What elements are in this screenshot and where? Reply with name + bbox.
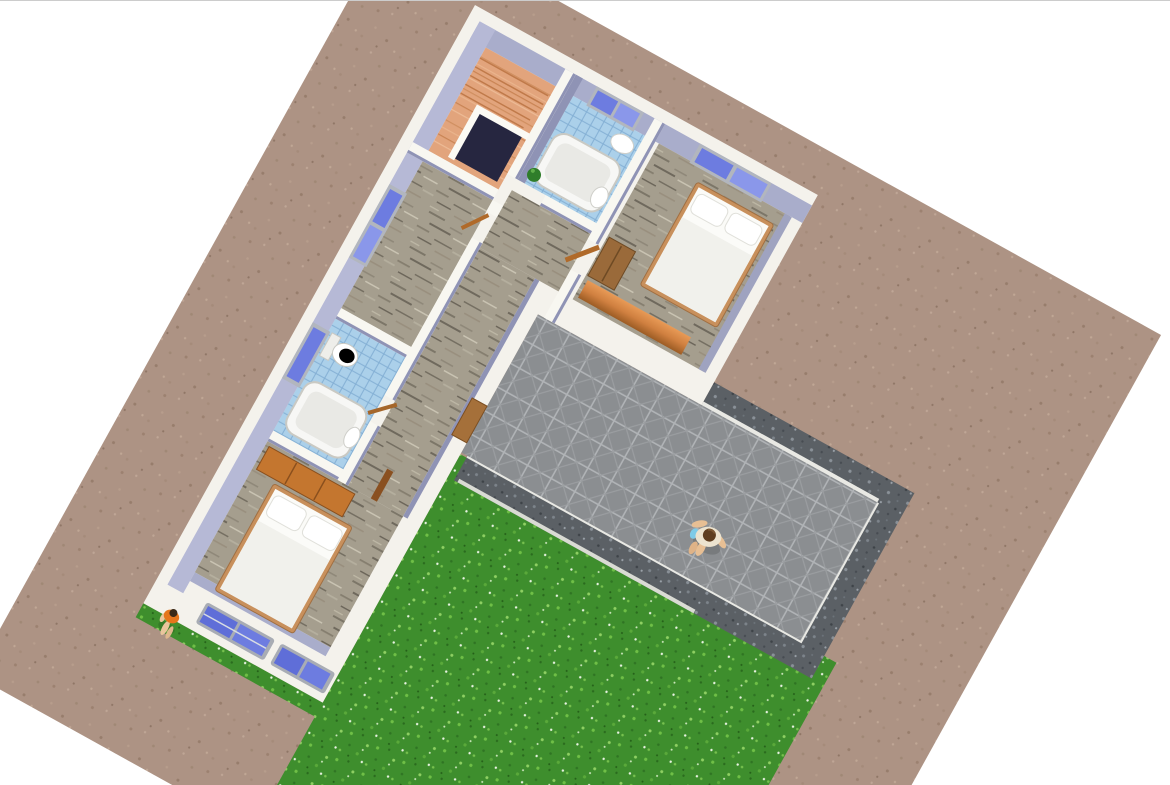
rotated-scene (0, 0, 1161, 785)
house-3d-rendering (0, 0, 1170, 785)
render-viewport (0, 0, 1170, 785)
